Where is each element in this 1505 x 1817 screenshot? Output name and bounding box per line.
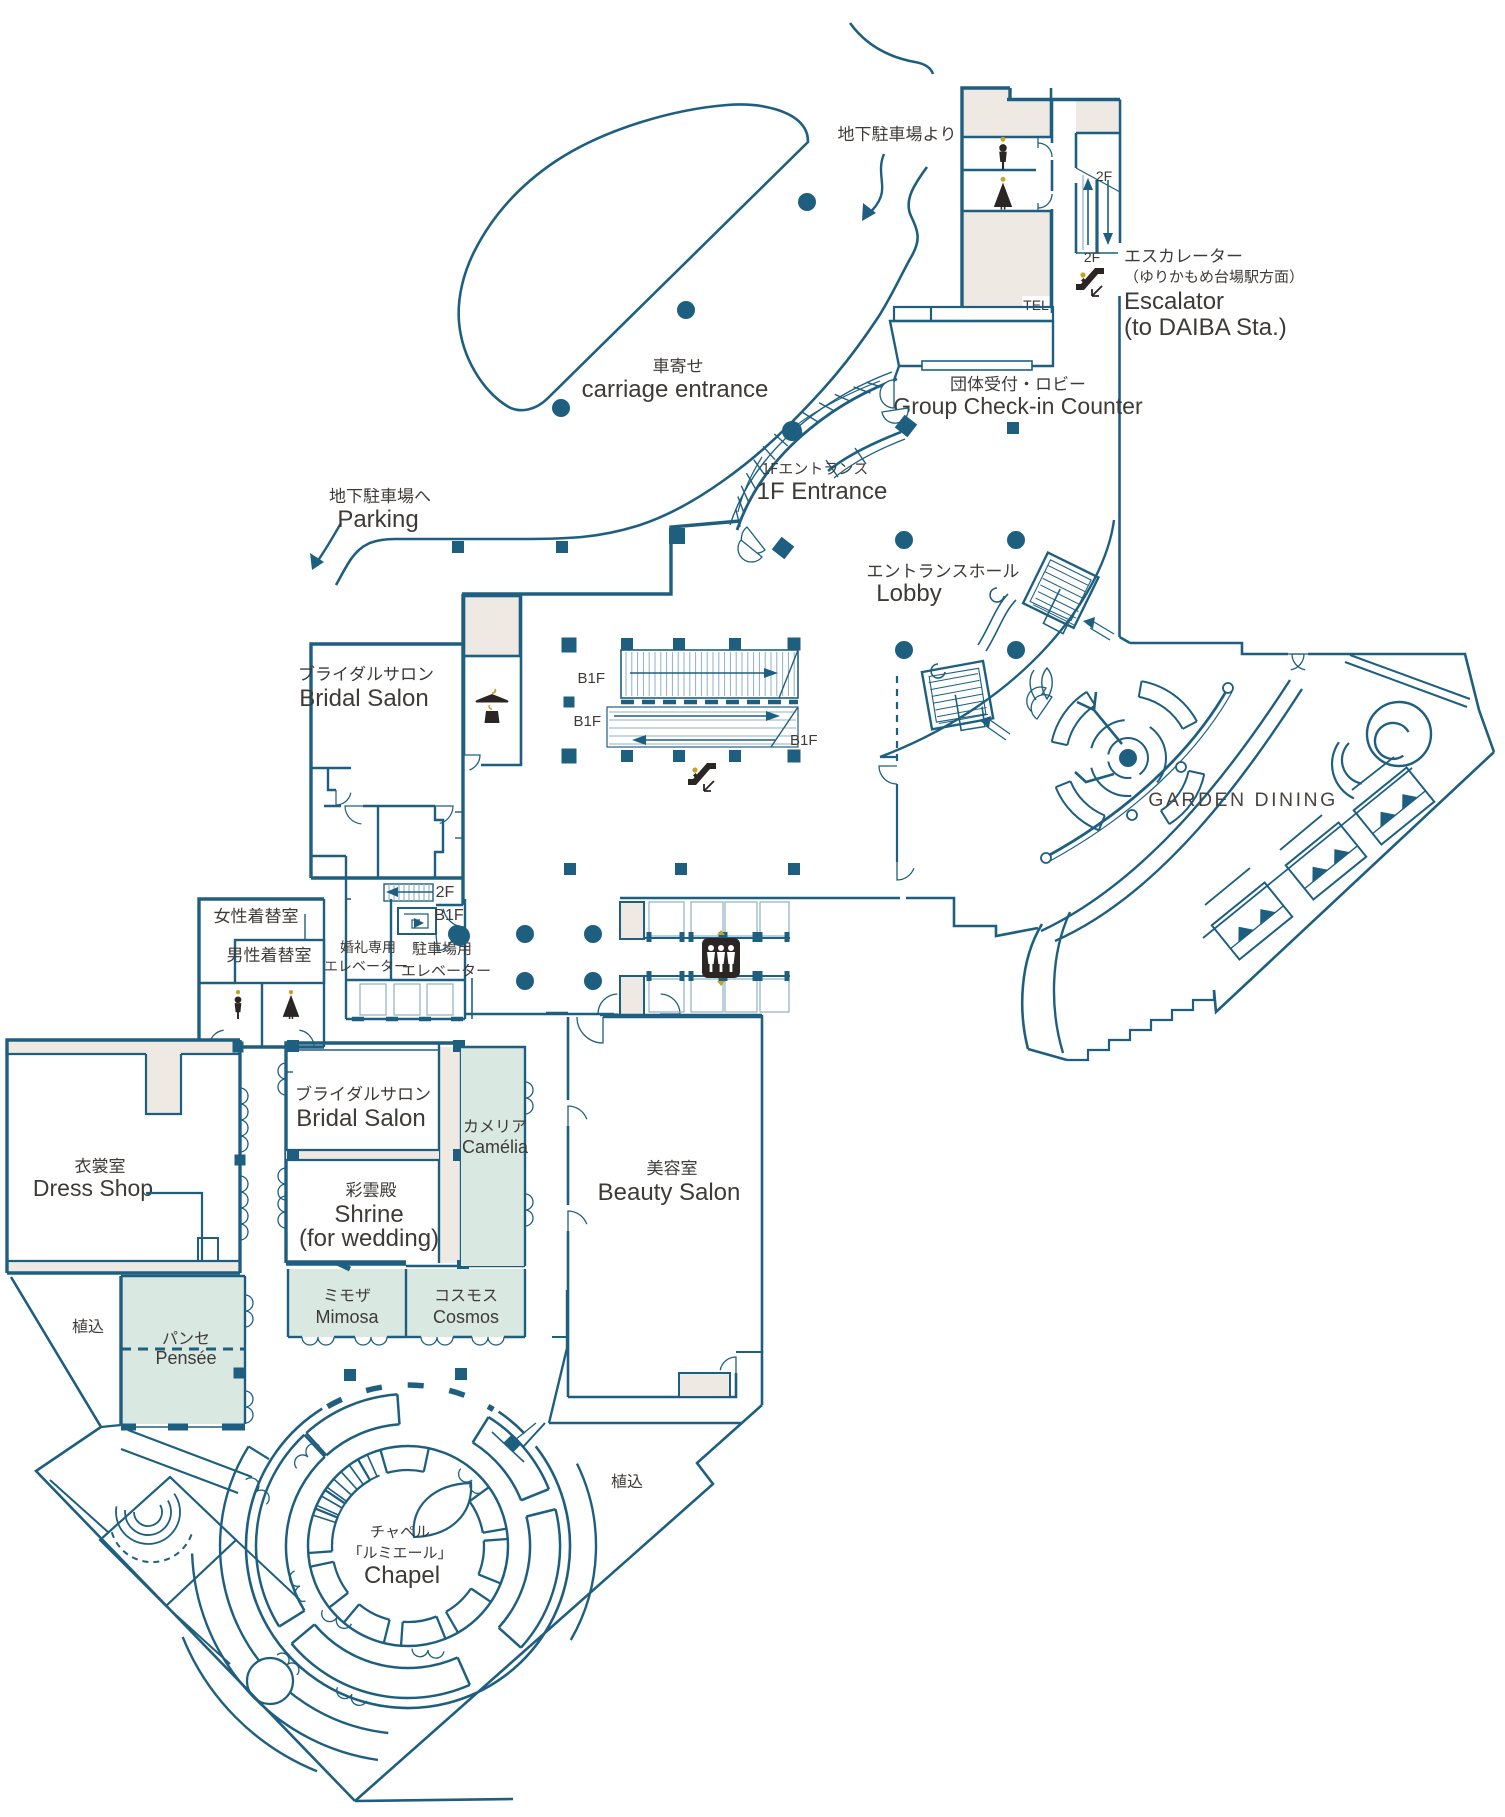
- svg-text:Bridal Salon: Bridal Salon: [296, 1105, 425, 1132]
- svg-text:GARDEN DINING: GARDEN DINING: [1148, 789, 1338, 811]
- svg-text:2F: 2F: [436, 884, 455, 901]
- svg-text:Cosmos: Cosmos: [433, 1307, 499, 1327]
- svg-text:B1F: B1F: [573, 713, 601, 730]
- svg-text:Escalator: Escalator: [1124, 288, 1224, 315]
- svg-text:Shrine: Shrine: [334, 1201, 403, 1228]
- svg-text:Pensée: Pensée: [155, 1348, 216, 1368]
- svg-text:(for wedding): (for wedding): [299, 1225, 439, 1252]
- svg-text:Chapel: Chapel: [364, 1562, 440, 1589]
- svg-text:B1F: B1F: [434, 907, 464, 924]
- svg-text:Bridal Salon: Bridal Salon: [299, 685, 428, 712]
- svg-text:Parking: Parking: [337, 506, 418, 533]
- svg-text:(to DAIBA Sta.): (to DAIBA Sta.): [1124, 314, 1287, 341]
- svg-text:carriage entrance: carriage entrance: [582, 376, 769, 403]
- svg-text:Dress Shop: Dress Shop: [33, 1175, 153, 1201]
- svg-text:B1F: B1F: [790, 732, 818, 749]
- svg-text:Group Check-in Counter: Group Check-in Counter: [893, 393, 1143, 419]
- svg-text:Beauty Salon: Beauty Salon: [598, 1179, 741, 1206]
- svg-text:Mimosa: Mimosa: [315, 1307, 379, 1327]
- svg-text:TEL: TEL: [1023, 297, 1049, 313]
- svg-text:Camélia: Camélia: [462, 1137, 529, 1157]
- svg-text:B1F: B1F: [577, 670, 605, 687]
- svg-text:1F Entrance: 1F Entrance: [757, 478, 888, 505]
- svg-text:Lobby: Lobby: [876, 580, 941, 607]
- svg-text:2F: 2F: [1084, 249, 1100, 265]
- svg-text:2F: 2F: [1096, 168, 1112, 184]
